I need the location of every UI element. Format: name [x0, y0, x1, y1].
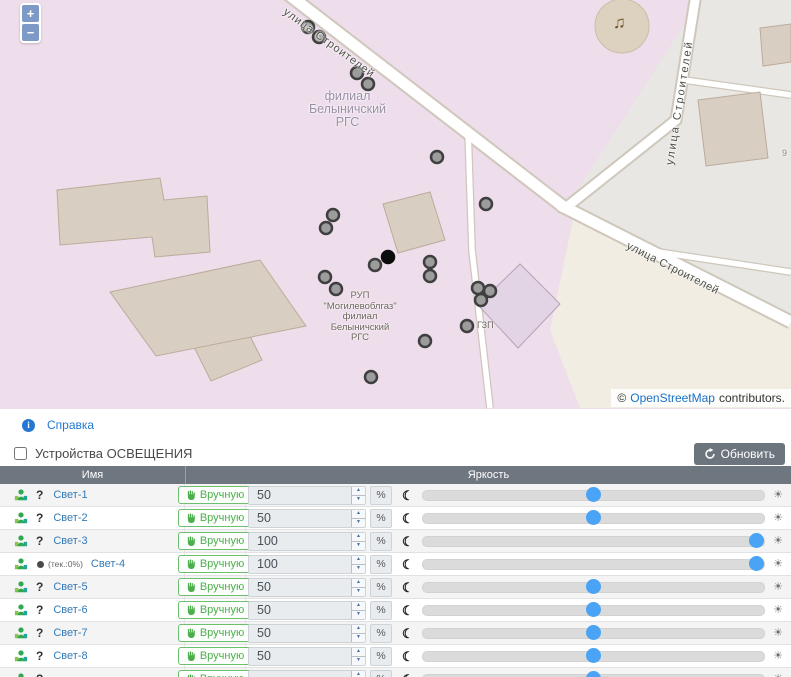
brightness-slider-track[interactable] — [422, 513, 765, 524]
slider-cell: ☾ ☀ — [393, 645, 791, 667]
spinner-up-button[interactable]: ▲ — [352, 648, 365, 657]
name-cell: ? Свет-5 — [0, 576, 185, 598]
brightness-input-box: ▲ ▼ — [248, 555, 366, 574]
spinner: ▲ ▼ — [351, 533, 365, 550]
map-marker[interactable] — [327, 209, 339, 221]
map-marker[interactable] — [320, 222, 332, 234]
brightness-input-box: ▲ ▼ — [248, 624, 366, 643]
map-marker[interactable] — [319, 271, 331, 283]
value-cell: ▲ ▼ % — [246, 622, 393, 644]
brightness-input-box: ▲ ▼ — [248, 486, 366, 505]
device-link[interactable]: Свет-6 — [53, 604, 87, 616]
value-cell: ▲ ▼ % — [246, 668, 393, 677]
brightness-slider-handle[interactable] — [586, 625, 601, 640]
map-base-layer — [0, 0, 791, 409]
table-row: ? Свет-3 Вручную — [0, 530, 791, 553]
spinner-up-button[interactable]: ▲ — [352, 556, 365, 565]
map-marker[interactable] — [480, 198, 492, 210]
name-cell: ? Свет-1 — [0, 484, 185, 506]
table-row: ? Свет-1 Вручную — [0, 484, 791, 507]
device-status-icon — [14, 649, 28, 663]
table-row: ? Свет-6 Вручную — [0, 599, 791, 622]
map-marker[interactable] — [475, 294, 487, 306]
name-cell: ? — [0, 668, 185, 677]
device-link[interactable]: Свет-4 — [91, 558, 125, 570]
brightness-input[interactable] — [249, 487, 357, 504]
spinner-down-button[interactable]: ▼ — [352, 657, 365, 665]
device-status-icon — [14, 488, 28, 502]
name-cell: ? Свет-6 — [0, 599, 185, 621]
column-header-name: Имя — [0, 466, 185, 484]
map-area-music — [595, 0, 649, 53]
map-marker[interactable] — [313, 31, 325, 43]
hand-icon — [186, 513, 196, 523]
brightness-input[interactable] — [249, 579, 357, 596]
sun-icon: ☀ — [773, 628, 783, 639]
manual-mode-button[interactable]: Вручную — [178, 555, 252, 573]
slider-cell: ☾ ☀ — [393, 599, 791, 621]
table-row: ? Свет-7 Вручную — [0, 622, 791, 645]
mode-cell: Вручную — [185, 553, 246, 575]
map-marker[interactable] — [461, 320, 473, 332]
name-cell: ? Свет-2 — [0, 507, 185, 529]
device-link[interactable]: Свет-1 — [53, 489, 87, 501]
moon-icon: ☾ — [402, 512, 414, 525]
spinner-up-button[interactable]: ▲ — [352, 579, 365, 588]
hand-icon — [186, 490, 196, 500]
brightness-input[interactable] — [249, 533, 357, 550]
spinner-down-button[interactable]: ▼ — [352, 496, 365, 504]
zoom-in-button[interactable]: + — [22, 5, 39, 22]
percent-sign: % — [370, 532, 392, 551]
name-cell: ? Свет-3 — [0, 530, 185, 552]
map-marker[interactable] — [369, 259, 381, 271]
brightness-slider-track[interactable] — [422, 490, 765, 501]
slider-cell: ☾ ☀ — [393, 507, 791, 529]
map-marker[interactable] — [302, 21, 314, 33]
current-value-note: (тек.:0%) — [48, 559, 83, 569]
hand-icon — [186, 628, 196, 638]
map-marker[interactable] — [365, 371, 377, 383]
moon-icon: ☾ — [402, 581, 414, 594]
sun-icon: ☀ — [773, 582, 783, 593]
spinner: ▲ ▼ — [351, 487, 365, 504]
spinner-up-button[interactable]: ▲ — [352, 602, 365, 611]
table-row: ? Вручную — [0, 668, 791, 677]
spinner: ▲ ▼ — [351, 556, 365, 573]
percent-sign: % — [370, 578, 392, 597]
table-row: ? Свет-8 Вручную — [0, 645, 791, 668]
copyright-symbol: © — [617, 391, 626, 405]
question-icon: ? — [36, 603, 43, 617]
mode-cell: Вручную — [185, 576, 246, 598]
brightness-input[interactable] — [249, 625, 357, 642]
device-status-icon — [14, 557, 28, 571]
device-status-icon — [14, 603, 28, 617]
brightness-input[interactable] — [249, 556, 357, 573]
question-icon: ? — [36, 626, 43, 640]
brightness-slider-track[interactable] — [422, 605, 765, 616]
value-cell: ▲ ▼ % — [246, 507, 393, 529]
slider-cell: ☾ ☀ — [393, 668, 791, 677]
brightness-slider-handle[interactable] — [749, 556, 764, 571]
brightness-input[interactable] — [249, 510, 357, 527]
value-cell: ▲ ▼ % — [246, 484, 393, 506]
name-cell: ? Свет-8 — [0, 645, 185, 667]
sun-icon: ☀ — [773, 559, 783, 570]
mode-cell: Вручную — [185, 622, 246, 644]
value-cell: ▲ ▼ % — [246, 576, 393, 598]
hand-icon — [186, 559, 196, 569]
percent-sign: % — [370, 647, 392, 666]
sun-icon: ☀ — [773, 513, 783, 524]
brightness-input-box: ▲ ▼ — [248, 509, 366, 528]
map-marker[interactable] — [419, 335, 431, 347]
brightness-slider-handle[interactable] — [586, 579, 601, 594]
hand-icon — [186, 536, 196, 546]
mode-cell: Вручную — [185, 530, 246, 552]
mode-cell: Вручную — [185, 645, 246, 667]
hand-icon — [186, 582, 196, 592]
refresh-icon — [704, 448, 716, 460]
spinner-down-button[interactable]: ▼ — [352, 588, 365, 596]
spinner-up-button[interactable]: ▲ — [352, 625, 365, 634]
panel-header: Устройства ОСВЕЩЕНИЯ Обновить — [0, 441, 791, 466]
brightness-input-box: ▲ ▼ — [248, 601, 366, 620]
devices-checkbox[interactable] — [14, 447, 27, 460]
percent-sign: % — [370, 601, 392, 620]
brightness-input-box: ▲ ▼ — [248, 532, 366, 551]
device-link[interactable]: Свет-3 — [53, 535, 87, 547]
percent-sign: % — [370, 509, 392, 528]
spinner-up-button[interactable]: ▲ — [352, 671, 365, 677]
manual-mode-button[interactable]: Вручную — [178, 509, 252, 527]
sun-icon: ☀ — [773, 605, 783, 616]
percent-sign: % — [370, 486, 392, 505]
map-marker[interactable] — [431, 151, 443, 163]
device-status-icon — [14, 534, 28, 548]
slider-cell: ☾ ☀ — [393, 576, 791, 598]
sun-icon: ☀ — [773, 536, 783, 547]
spinner-down-button[interactable]: ▼ — [352, 611, 365, 619]
map-marker[interactable] — [424, 256, 436, 268]
help-bar: i Справка — [0, 409, 791, 441]
brightness-slider-handle[interactable] — [586, 602, 601, 617]
brightness-slider-handle[interactable] — [586, 510, 601, 525]
moon-icon: ☾ — [402, 489, 414, 502]
map-marker[interactable] — [382, 251, 395, 264]
attribution-suffix: contributors. — [719, 391, 785, 405]
device-link[interactable]: Свет-5 — [53, 581, 87, 593]
question-icon: ? — [36, 534, 43, 548]
percent-sign: % — [370, 670, 392, 677]
spinner-up-button[interactable]: ▲ — [352, 487, 365, 496]
question-icon: ? — [36, 649, 43, 663]
moon-icon: ☾ — [402, 604, 414, 617]
moon-icon: ☾ — [402, 673, 414, 677]
hand-icon — [186, 651, 196, 661]
sun-icon: ☀ — [773, 651, 783, 662]
map-canvas[interactable]: улица Строителей улица Строителей улица … — [0, 0, 791, 409]
refresh-button[interactable]: Обновить — [694, 443, 785, 465]
table-row: ? (тек.:0%) Свет-4 Вручную — [0, 553, 791, 576]
manual-mode-button[interactable]: Вручную — [178, 532, 252, 550]
spinner-down-button[interactable]: ▼ — [352, 634, 365, 642]
brightness-slider-track[interactable] — [422, 559, 765, 570]
spinner: ▲ ▼ — [351, 671, 365, 677]
moon-icon: ☾ — [402, 650, 414, 663]
map-marker[interactable] — [424, 270, 436, 282]
brightness-input-box: ▲ ▼ — [248, 670, 366, 677]
spinner-up-button[interactable]: ▲ — [352, 533, 365, 542]
zoom-out-button[interactable]: − — [22, 24, 39, 41]
manual-mode-button[interactable]: Вручную — [178, 601, 252, 619]
brightness-slider-handle[interactable] — [586, 671, 601, 677]
spinner-down-button[interactable]: ▼ — [352, 519, 365, 527]
spinner-down-button[interactable]: ▼ — [352, 565, 365, 573]
map-attribution: © OpenStreetMap contributors. — [611, 389, 791, 407]
name-cell: ? (тек.:0%) Свет-4 — [0, 553, 185, 575]
map-marker[interactable] — [330, 283, 342, 295]
spinner: ▲ ▼ — [351, 648, 365, 665]
manual-mode-button[interactable]: Вручную — [178, 624, 252, 642]
info-icon: i — [22, 419, 35, 432]
mode-cell: Вручную — [185, 599, 246, 621]
map-marker[interactable] — [362, 78, 374, 90]
sun-icon: ☀ — [773, 674, 783, 677]
manual-mode-button[interactable]: Вручную — [178, 670, 252, 677]
column-header-brightness: Яркость — [185, 466, 791, 484]
brightness-slider-track[interactable] — [422, 536, 765, 547]
percent-sign: % — [370, 555, 392, 574]
app-window: улица Строителей улица Строителей улица … — [0, 0, 791, 677]
device-status-icon — [14, 511, 28, 525]
question-icon: ? — [36, 488, 43, 502]
brightness-input-box: ▲ ▼ — [248, 647, 366, 666]
moon-icon: ☾ — [402, 535, 414, 548]
spinner: ▲ ▼ — [351, 602, 365, 619]
manual-mode-button[interactable]: Вручную — [178, 578, 252, 596]
spinner-down-button[interactable]: ▼ — [352, 542, 365, 550]
brightness-input-box: ▲ ▼ — [248, 578, 366, 597]
brightness-slider-track[interactable] — [422, 651, 765, 662]
spinner-up-button[interactable]: ▲ — [352, 510, 365, 519]
slider-cell: ☾ ☀ — [393, 484, 791, 506]
help-link[interactable]: Справка — [47, 418, 94, 432]
question-icon: ? — [36, 511, 43, 525]
map-marker[interactable] — [351, 67, 363, 79]
value-cell: ▲ ▼ % — [246, 553, 393, 575]
table-header: Имя Яркость — [0, 466, 791, 484]
device-link[interactable]: Свет-8 — [53, 650, 87, 662]
brightness-slider-handle[interactable] — [586, 648, 601, 663]
percent-sign: % — [370, 624, 392, 643]
brightness-slider-handle[interactable] — [586, 487, 601, 502]
spinner: ▲ ▼ — [351, 625, 365, 642]
slider-cell: ☾ ☀ — [393, 622, 791, 644]
slider-cell: ☾ ☀ — [393, 553, 791, 575]
question-icon: ? — [36, 672, 43, 677]
hand-icon — [186, 605, 196, 615]
current-state-dot-icon — [37, 561, 44, 568]
map-zoom-control: + − — [20, 3, 41, 43]
mode-cell: Вручную — [185, 507, 246, 529]
spinner: ▲ ▼ — [351, 579, 365, 596]
panel-title: Устройства ОСВЕЩЕНИЯ — [35, 446, 192, 461]
openstreetmap-link[interactable]: OpenStreetMap — [630, 391, 715, 405]
map-marker[interactable] — [472, 282, 484, 294]
brightness-input[interactable] — [249, 671, 357, 677]
device-status-icon — [14, 580, 28, 594]
value-cell: ▲ ▼ % — [246, 530, 393, 552]
mode-cell: Вручную — [185, 668, 246, 677]
device-link[interactable]: Свет-2 — [53, 512, 87, 524]
slider-cell: ☾ ☀ — [393, 530, 791, 552]
brightness-slider-handle[interactable] — [749, 533, 764, 548]
question-icon: ? — [36, 580, 43, 594]
brightness-slider-track[interactable] — [422, 582, 765, 593]
device-status-icon — [14, 672, 28, 677]
moon-icon: ☾ — [402, 627, 414, 640]
name-cell: ? Свет-7 — [0, 622, 185, 644]
device-status-icon — [14, 626, 28, 640]
moon-icon: ☾ — [402, 558, 414, 571]
table-row: ? Свет-2 Вручную — [0, 507, 791, 530]
table-row: ? Свет-5 Вручную — [0, 576, 791, 599]
brightness-slider-track[interactable] — [422, 674, 765, 677]
device-rows: ? Свет-1 Вручную — [0, 484, 791, 677]
manual-mode-button[interactable]: Вручную — [178, 486, 252, 504]
mode-cell: Вручную — [185, 484, 246, 506]
device-link[interactable]: Свет-7 — [53, 627, 87, 639]
value-cell: ▲ ▼ % — [246, 599, 393, 621]
sun-icon: ☀ — [773, 490, 783, 501]
brightness-slider-track[interactable] — [422, 628, 765, 639]
spinner: ▲ ▼ — [351, 510, 365, 527]
manual-mode-button[interactable]: Вручную — [178, 647, 252, 665]
brightness-input[interactable] — [249, 648, 357, 665]
value-cell: ▲ ▼ % — [246, 645, 393, 667]
brightness-input[interactable] — [249, 602, 357, 619]
